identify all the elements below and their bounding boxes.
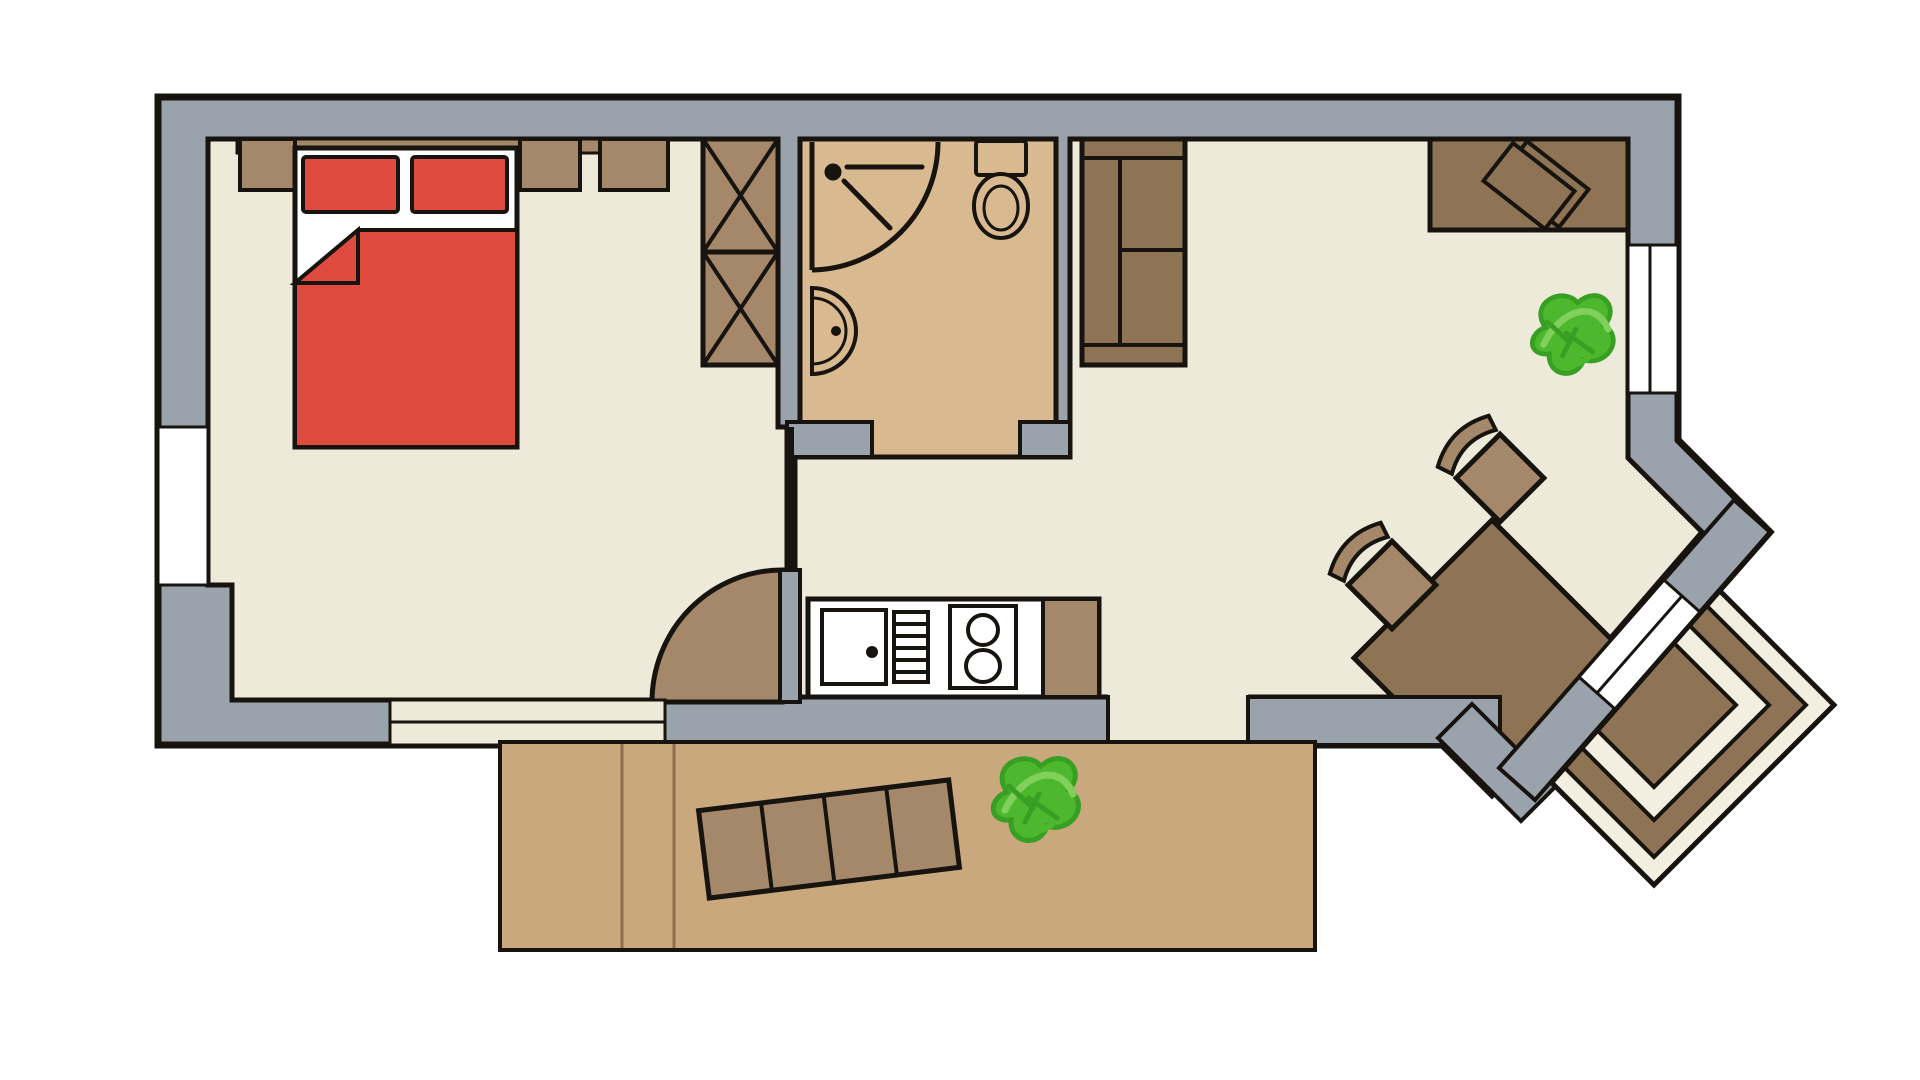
pillow-right	[412, 157, 507, 212]
window-left	[158, 427, 208, 585]
nightstand-left	[240, 139, 295, 190]
counter-end-cabinet	[1043, 599, 1099, 697]
window-right	[1628, 245, 1678, 393]
door-leaf-bedroom	[780, 570, 800, 702]
dresser	[600, 139, 668, 190]
washbasin-drain	[831, 326, 841, 336]
window-right-frame	[1628, 245, 1678, 393]
south-terrace	[500, 742, 1315, 950]
terrace-doorway	[1108, 693, 1248, 747]
nightstand-right	[520, 139, 580, 190]
shower-head-icon	[825, 164, 841, 180]
terrace-doorway-floor	[1108, 693, 1248, 747]
floor-plan-canvas	[0, 0, 1920, 1080]
toilet-cistern	[976, 141, 1026, 175]
pillow-left	[303, 157, 398, 212]
kitchen-counter	[808, 599, 1099, 697]
toilet-bowl	[974, 174, 1028, 238]
window-south-bedroom	[390, 700, 665, 745]
bathroom-wall-south-left	[787, 422, 872, 457]
sink-basin	[822, 610, 886, 684]
sink-drain	[866, 646, 878, 658]
wardrobe	[703, 139, 778, 365]
bathroom-wall-south-right	[1020, 422, 1070, 457]
shelving-unit	[1082, 139, 1185, 365]
